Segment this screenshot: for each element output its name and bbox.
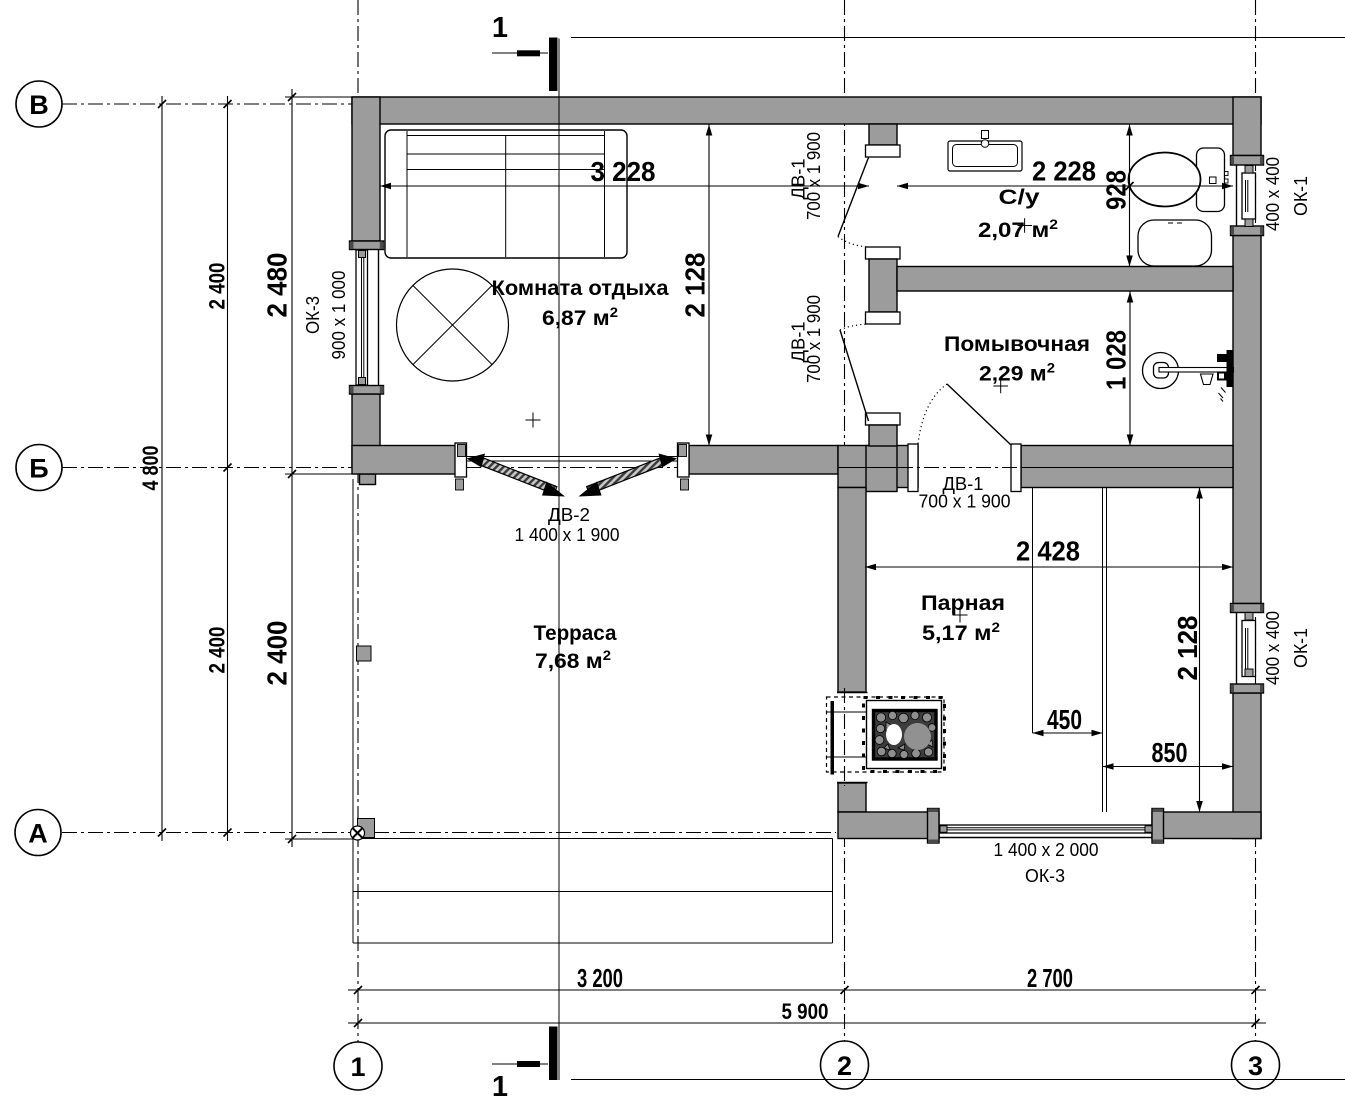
- svg-text:2 480: 2 480: [262, 253, 293, 318]
- svg-text:3 228: 3 228: [591, 156, 656, 187]
- svg-text:928: 928: [1101, 170, 1132, 210]
- svg-text:400 x 400: 400 x 400: [1263, 611, 1283, 685]
- svg-text:2,07 м2: 2,07 м2: [978, 216, 1058, 242]
- svg-text:2 228: 2 228: [1032, 156, 1096, 187]
- svg-text:1 400 x 2 000: 1 400 x 2 000: [994, 840, 1099, 860]
- svg-text:2 400: 2 400: [205, 627, 230, 674]
- svg-text:3: 3: [1248, 1051, 1263, 1081]
- svg-text:ОК-1: ОК-1: [1291, 176, 1311, 216]
- svg-text:1: 1: [492, 1071, 508, 1097]
- svg-text:900 x 1 000: 900 x 1 000: [329, 271, 349, 360]
- svg-text:5,17 м2: 5,17 м2: [922, 619, 1000, 645]
- svg-text:700 x 1 900: 700 x 1 900: [919, 492, 1011, 512]
- svg-text:В: В: [29, 90, 49, 120]
- svg-text:ОК-1: ОК-1: [1291, 628, 1311, 668]
- svg-text:Терраса: Терраса: [534, 621, 618, 645]
- svg-text:2 128: 2 128: [1172, 616, 1203, 681]
- svg-text:5 900: 5 900: [782, 999, 829, 1024]
- svg-text:2: 2: [837, 1051, 852, 1081]
- svg-text:850: 850: [1152, 737, 1188, 768]
- svg-text:Помывочная: Помывочная: [944, 332, 1090, 356]
- svg-text:Б: Б: [29, 454, 48, 484]
- svg-text:450: 450: [1047, 704, 1082, 735]
- svg-text:2 400: 2 400: [262, 621, 293, 686]
- svg-text:Комната отдыха: Комната отдыха: [492, 276, 670, 300]
- svg-text:Парная: Парная: [921, 591, 1005, 615]
- svg-text:400 x 400: 400 x 400: [1263, 157, 1283, 231]
- svg-text:ОК-3: ОК-3: [1025, 866, 1065, 886]
- svg-text:1: 1: [350, 1052, 365, 1082]
- svg-text:700 x 1 900: 700 x 1 900: [804, 295, 824, 383]
- svg-text:1: 1: [492, 12, 508, 44]
- svg-text:2 128: 2 128: [680, 253, 711, 318]
- svg-text:ОК-3: ОК-3: [303, 296, 323, 334]
- svg-text:4 800: 4 800: [138, 446, 163, 491]
- svg-text:1 400 x 1 900: 1 400 x 1 900: [515, 525, 620, 545]
- svg-text:7,68 м2: 7,68 м2: [535, 647, 611, 673]
- svg-text:1 028: 1 028: [1101, 330, 1132, 390]
- svg-text:6,87 м2: 6,87 м2: [542, 304, 618, 330]
- svg-text:700 x 1 900: 700 x 1 900: [804, 132, 824, 220]
- svg-text:2 400: 2 400: [205, 263, 230, 310]
- svg-text:2,29 м2: 2,29 м2: [979, 360, 1055, 386]
- svg-text:ДВ-2: ДВ-2: [548, 505, 590, 525]
- svg-text:2 428: 2 428: [1016, 536, 1080, 567]
- svg-text:А: А: [28, 819, 48, 849]
- svg-text:3 200: 3 200: [577, 963, 623, 993]
- svg-text:2 700: 2 700: [1027, 963, 1073, 993]
- svg-text:С/у: С/у: [999, 185, 1040, 209]
